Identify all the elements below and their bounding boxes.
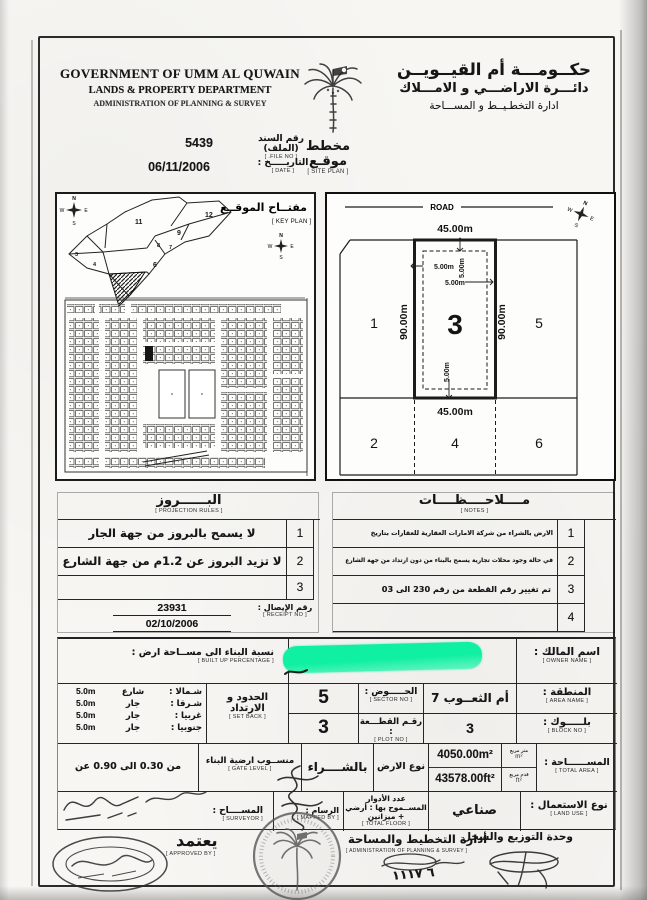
receipt-values: 23931 02/10/2006 — [113, 602, 231, 634]
unit-sqm-en: m² — [502, 754, 536, 760]
svg-text:8: 8 — [157, 243, 160, 249]
setback-label-en: [ SET BACK ] — [207, 714, 288, 720]
svg-text:S: S — [72, 221, 76, 227]
projection-title-en: [ PROJECTION RULES ] — [58, 508, 320, 514]
setback-type: جار — [116, 711, 150, 721]
plot-no-label: رقـم القطـــعة : [ PLOT NO ] — [358, 714, 423, 744]
svg-text:9: 9 — [177, 230, 181, 237]
setback-type: جار — [116, 699, 150, 709]
total-area-sqft-value: 43578.00ft² — [428, 768, 501, 792]
setback-val: 5.0m — [76, 722, 116, 732]
total-floor-label-ar1: عدد الأدوار — [344, 794, 428, 803]
key-plan-drawing: مفتــاح الموقــع [ KEY PLAN ] N S W E N … — [57, 194, 314, 479]
file-no-label-ar: رقم السند (الملف) — [243, 134, 319, 154]
neighbor-plot: 2 — [370, 435, 378, 451]
svg-text:W: W — [268, 244, 273, 250]
setback-dir: جنوبيا : — [150, 723, 202, 733]
date-label-en: [ DATE ] — [250, 168, 316, 174]
date-value: 06/11/2006 — [134, 160, 224, 174]
neighbor-plot: 6 — [535, 435, 543, 451]
area-name-label-ar: المنطقة : — [517, 687, 617, 698]
projection-rule-no: 3 — [286, 576, 314, 600]
total-area-sqm-value: 4050.00m² — [428, 744, 501, 768]
projection-rules-table: البــــــروز [ PROJECTION RULES ] لا يسم… — [57, 492, 319, 633]
date-label-ar: التاريـــــخ : — [250, 158, 316, 168]
land-use-label: نوع الاستعمال : [ LAND USE ] — [520, 792, 617, 831]
neighbor-plot: 4 — [451, 435, 459, 451]
svg-text:E: E — [589, 216, 595, 223]
approved-by-text: يعتمد — [176, 831, 218, 850]
sector-no-label-ar: الحـــــوض : — [359, 687, 423, 697]
svg-text:N: N — [279, 233, 283, 239]
scanned-site-plan-document: GOVERNMENT OF UMM AL QUWAIN LANDS & PROP… — [0, 0, 647, 900]
unit-sqm: متر مربع m² — [501, 744, 536, 768]
note-no: 3 — [557, 576, 585, 604]
plot-no-value: 3 — [288, 714, 358, 744]
svg-text:W: W — [566, 207, 574, 215]
dim-bottom: 45.00m — [437, 406, 473, 418]
setback-dim: 5.00m — [445, 280, 465, 287]
palm-tree-logo-icon — [300, 58, 366, 136]
notes-table: مــــلاحــــظــــات [ NOTES ] الارض بالش… — [332, 492, 615, 633]
note-text: الارض بالشراء من شركة الامارات العقارية … — [333, 520, 557, 548]
neighbor-plot: 5 — [535, 315, 543, 331]
setback-label-ar2: الارتداد — [207, 703, 288, 714]
approved-stamp — [48, 834, 174, 896]
distribution-unit-text: وحدة التوزيع والسجل — [462, 831, 573, 843]
sector-no-value: 5 — [288, 684, 358, 714]
block-no-label-ar: بلـــــوك : — [517, 717, 617, 728]
notes-title-ar: مــــلاحــــظــــات — [333, 493, 616, 508]
block-no-label: بلـــــوك : [ BLOCK NO ] — [516, 714, 617, 744]
projection-rule-no: 2 — [286, 548, 314, 576]
setback-directions: شـمالا : شارع 5.0m شـرقا : جار 5.0m غربي… — [76, 685, 202, 743]
owner-name-label-ar: اسم المالك : — [517, 646, 617, 658]
admin-title-ar: ادارة التخطـيــط و المســـاحة — [380, 100, 608, 112]
projection-rule-text: لا يسمح بالبروز من جهة الجار — [58, 520, 286, 548]
setback-type: جار — [116, 723, 150, 733]
land-type-label: نوع الارض : — [373, 744, 428, 792]
plot-number: 3 — [447, 309, 463, 340]
total-area-label: المســــــاحة : [ TOTAL AREA ] — [536, 744, 617, 792]
header-english: GOVERNMENT OF UMM AL QUWAIN LANDS & PROP… — [56, 66, 304, 108]
area-name-label: المنطقة : [ AREA NAME ] — [516, 684, 617, 714]
site-plan-box: ROAD N S W E 45.00m 45.00m 90.00m 90.00m… — [325, 192, 616, 481]
dim-left: 90.00m — [398, 304, 410, 340]
note-text: تم تغيير رقم القطعة من رقم 230 الى 03 — [333, 576, 557, 604]
sector-no-label: الحـــــوض : [ SECTOR NO ] — [358, 684, 423, 714]
file-no-value: 5439 — [168, 136, 230, 150]
dim-top: 45.00m — [437, 223, 473, 235]
dept-title-en: LANDS & PROPERTY DEPARTMENT — [56, 85, 304, 96]
projection-title-ar: البــــــروز — [58, 493, 320, 508]
key-plan-box: مفتــاح الموقــع [ KEY PLAN ] N S W E N … — [55, 192, 316, 481]
setback-type: شارع — [116, 687, 150, 697]
unit-sqft: قدم مربع ft² — [501, 768, 536, 792]
svg-text:6: 6 — [153, 262, 157, 269]
setback-dir: شـمالا : — [150, 687, 202, 697]
key-plan-title-en: [ KEY PLAN ] — [272, 219, 312, 225]
land-use-value: صناعي — [428, 792, 520, 831]
date-label: التاريـــــخ : [ DATE ] — [250, 158, 316, 174]
projection-rule-no: 1 — [286, 520, 314, 548]
svg-text:S: S — [279, 255, 283, 261]
road-label: ROAD — [430, 203, 454, 212]
setback-val: 5.0m — [76, 698, 116, 708]
note-no: 1 — [557, 520, 585, 548]
file-no-label: رقم السند (الملف) [ FILE NO. ] — [243, 134, 319, 160]
svg-text:11: 11 — [135, 219, 143, 226]
setback-row-south: جنوبيا : جار 5.0m — [76, 722, 202, 733]
note-text: في حالة وجود محلات تجارية يسمح بالبناء م… — [333, 548, 557, 576]
svg-text:S: S — [573, 223, 579, 230]
compass-icon: N S W E — [561, 196, 599, 235]
gov-title-en: GOVERNMENT OF UMM AL QUWAIN — [56, 66, 304, 82]
setback-row-east: شـرقا : جار 5.0m — [76, 698, 202, 709]
setback-block: الحدود و الارتداد [ SET BACK ] شـمالا : … — [58, 684, 288, 744]
dept-title-ar: دائـــرة الاراضـــي و الامـــلاك — [380, 81, 608, 96]
svg-text:7: 7 — [169, 245, 172, 251]
plot-no-label-en: [ PLOT NO ] — [359, 737, 423, 743]
unit-sqft-en: ft² — [502, 778, 536, 784]
surveyor-signature — [58, 782, 213, 828]
builtup-label-ar: نسبة البناء الى مســاحة ارض : — [58, 647, 274, 658]
svg-text:N: N — [72, 196, 76, 202]
receipt-no: 23931 — [113, 602, 231, 616]
neighbor-plot: 1 — [370, 315, 378, 331]
builtup-label-en: [ BUILT UP PERCENTAGE ] — [58, 658, 274, 664]
compass-icon: N S W E — [60, 196, 89, 227]
setback-val: 5.0m — [76, 710, 116, 720]
parcel-grid — [65, 298, 307, 476]
receipt-label-en: [ RECEIPT NO ] — [254, 612, 316, 618]
svg-text:E: E — [84, 208, 88, 214]
gov-title-ar: حكــومـــة أم القيــويــن — [380, 60, 608, 79]
svg-text:4: 4 — [93, 262, 97, 268]
svg-text:E: E — [290, 244, 294, 250]
receipt-label-ar: رقم الإيصال : — [254, 603, 316, 612]
block-no-label-en: [ BLOCK NO ] — [517, 728, 617, 734]
setback-row-west: غربيا : جار 5.0m — [76, 710, 202, 721]
block-no-value: 3 — [423, 714, 516, 744]
land-use-label-en: [ LAND USE ] — [521, 811, 617, 817]
key-plan-title-ar: مفتــاح الموقــع — [220, 201, 307, 214]
approved-by-en: [ APPROVED BY ] — [166, 851, 216, 857]
setback-val: 5.0m — [76, 686, 116, 696]
setback-dir: شـرقا : — [150, 699, 202, 709]
setback-label: الحدود و الارتداد [ SET BACK ] — [206, 684, 288, 744]
total-area-label-en: [ TOTAL AREA ] — [537, 768, 617, 774]
note-text — [333, 604, 557, 632]
total-floor-cell: عدد الأدوار المســموح بها : أرضي + ميزان… — [343, 792, 428, 831]
note-no: 4 — [557, 604, 585, 632]
admin-title-en: ADMINISTRATION OF PLANNING & SURVEY — [56, 99, 304, 108]
svg-text:N: N — [582, 200, 588, 207]
peeking-ink-mark — [283, 664, 313, 678]
owner-name-label: اسم المالك : [ OWNER NAME ] — [516, 639, 617, 684]
setback-row-north: شـمالا : شارع 5.0m — [76, 686, 202, 697]
receipt-label: رقم الإيصال : [ RECEIPT NO ] — [254, 603, 316, 633]
distribution-signature — [478, 846, 574, 890]
header-arabic: حكــومـــة أم القيــويــن دائـــرة الارا… — [380, 60, 608, 112]
area-name-label-en: [ AREA NAME ] — [517, 698, 617, 704]
svg-text:W: W — [60, 208, 65, 214]
area-name-value: أم الثعــوب 7 — [423, 684, 516, 714]
department-round-stamp — [246, 808, 348, 900]
dim-right: 90.00m — [496, 304, 508, 340]
owner-name-label-en: [ OWNER NAME ] — [517, 658, 617, 664]
notes-title-en: [ NOTES ] — [333, 508, 616, 514]
setback-dir: غربيا : — [150, 711, 202, 721]
land-use-label-ar: نوع الاستعمال : — [521, 800, 617, 811]
note-no: 2 — [557, 548, 585, 576]
svg-text:12: 12 — [205, 212, 213, 219]
projection-rule-text — [58, 576, 286, 600]
sector-no-label-en: [ SECTOR NO ] — [359, 697, 423, 703]
builtup-label: نسبة البناء الى مســاحة ارض : [ BUILT UP… — [58, 639, 288, 684]
setback-dim: 5.00m — [459, 258, 466, 278]
setback-label-ar1: الحدود و — [207, 692, 288, 703]
plot-no-label-ar: رقـم القطـــعة : — [359, 717, 423, 737]
total-floor-value: المســموح بها : أرضي + ميزانين — [344, 803, 428, 821]
compass-icon: N S W E — [268, 233, 295, 261]
total-floor-label-en: [ TOTAL FLOOR ] — [344, 821, 428, 827]
svg-text:3: 3 — [75, 252, 78, 258]
setback-dim: 5.00m — [444, 362, 451, 382]
total-area-label-ar: المســــــاحة : — [537, 757, 617, 768]
receipt-date: 02/10/2006 — [113, 618, 231, 632]
projection-rule-text: لا تزيد البروز عن 1.2م من جهة الشارع — [58, 548, 286, 576]
setback-dim: 5.00m — [434, 264, 454, 271]
site-plan-drawing: ROAD N S W E 45.00m 45.00m 90.00m 90.00m… — [327, 194, 613, 478]
